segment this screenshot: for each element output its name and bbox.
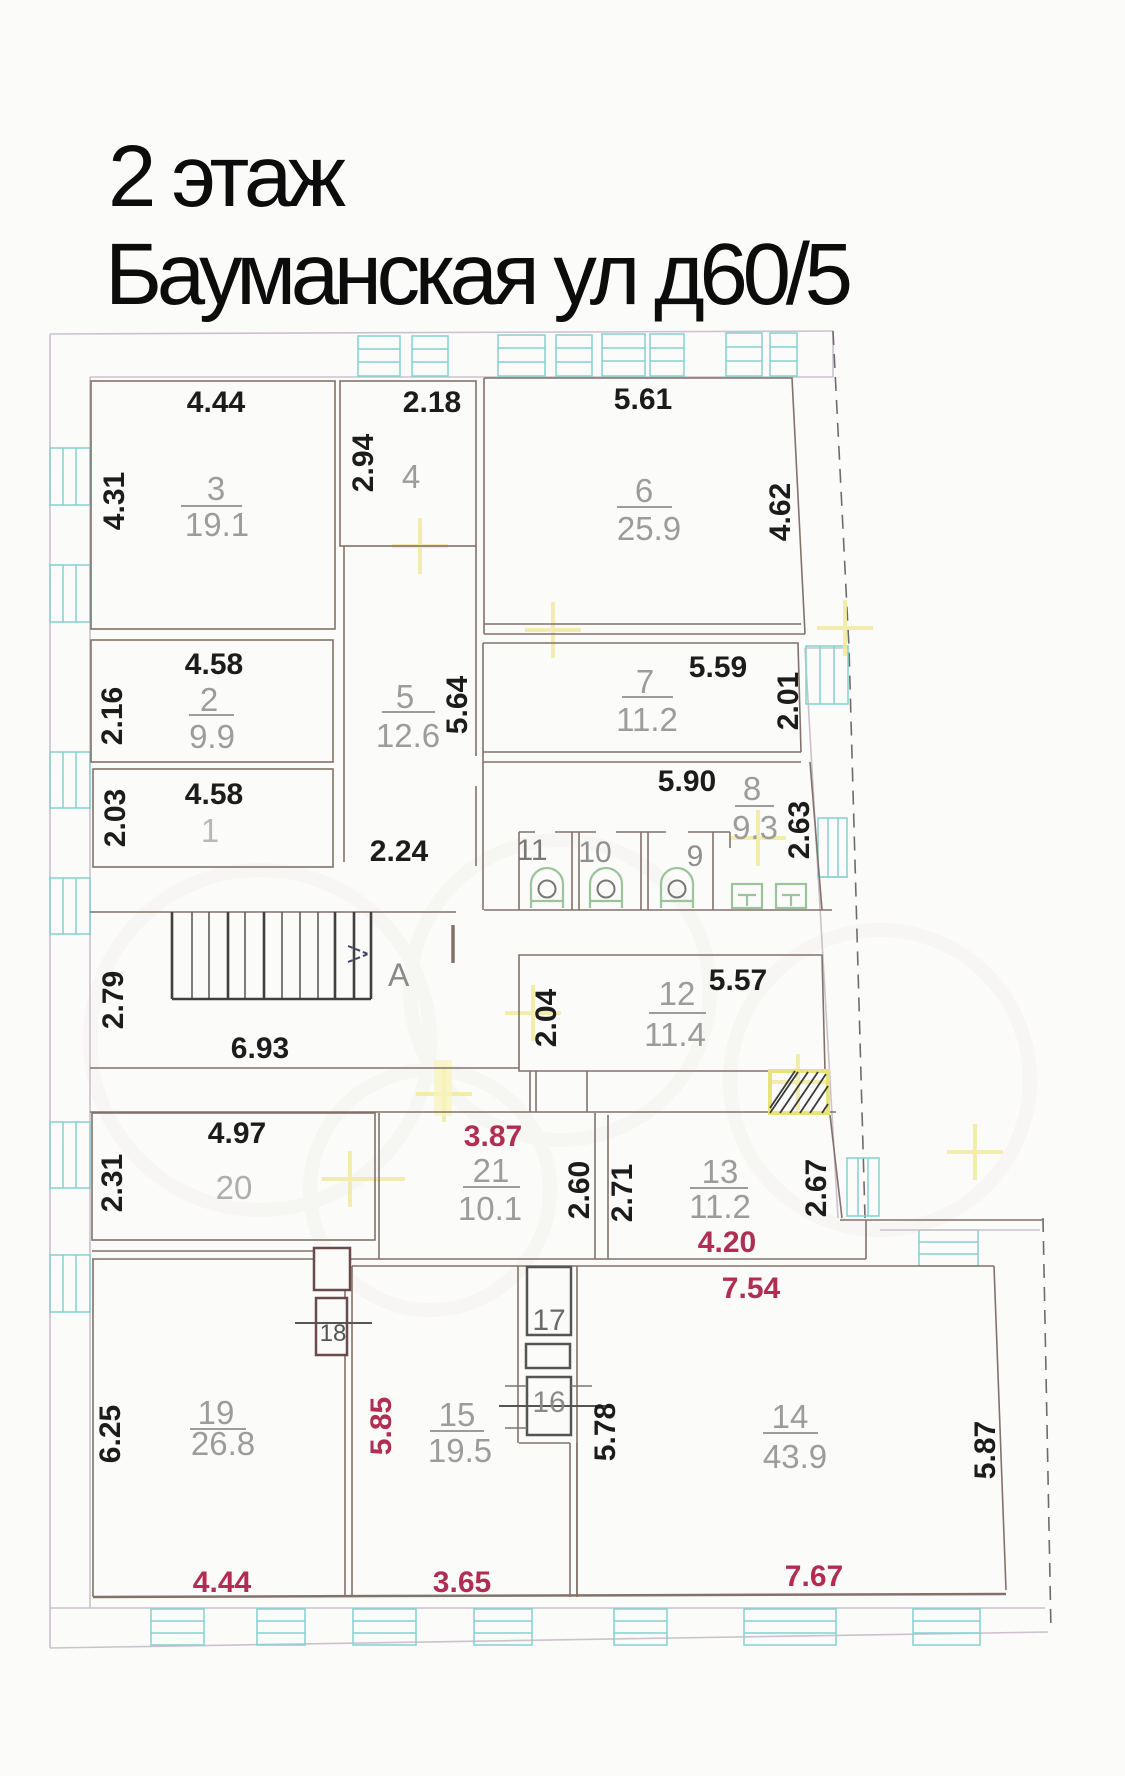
svg-text:2.18: 2.18 bbox=[403, 386, 461, 419]
svg-text:6.93: 6.93 bbox=[231, 1032, 289, 1065]
svg-text:2 этаж: 2 этаж bbox=[108, 128, 346, 225]
svg-text:2.94: 2.94 bbox=[347, 433, 380, 492]
svg-text:12.6: 12.6 bbox=[376, 717, 440, 754]
svg-text:4.20: 4.20 bbox=[698, 1226, 756, 1259]
svg-text:4.44: 4.44 bbox=[187, 386, 246, 419]
svg-text:5.85: 5.85 bbox=[365, 1397, 398, 1455]
svg-text:7.67: 7.67 bbox=[785, 1560, 843, 1593]
svg-text:2.79: 2.79 bbox=[97, 971, 130, 1029]
svg-text:2.31: 2.31 bbox=[96, 1154, 129, 1212]
svg-text:3.87: 3.87 bbox=[464, 1120, 522, 1153]
svg-text:7: 7 bbox=[636, 663, 654, 700]
svg-text:4.62: 4.62 bbox=[764, 483, 797, 541]
svg-text:5.90: 5.90 bbox=[658, 765, 716, 798]
svg-text:16: 16 bbox=[532, 1386, 565, 1419]
svg-text:6: 6 bbox=[635, 472, 653, 509]
svg-text:1: 1 bbox=[201, 812, 219, 849]
svg-text:7.54: 7.54 bbox=[722, 1272, 781, 1305]
svg-text:4.58: 4.58 bbox=[185, 778, 243, 811]
svg-text:5.64: 5.64 bbox=[441, 675, 474, 734]
svg-text:17: 17 bbox=[532, 1304, 565, 1337]
svg-text:6.25: 6.25 bbox=[94, 1405, 127, 1463]
svg-text:11.4: 11.4 bbox=[644, 1016, 706, 1053]
svg-text:2.24: 2.24 bbox=[370, 835, 429, 868]
svg-text:10: 10 bbox=[578, 836, 611, 869]
svg-text:10.1: 10.1 bbox=[458, 1190, 522, 1227]
svg-text:2.03: 2.03 bbox=[99, 789, 132, 847]
svg-text:19.1: 19.1 bbox=[185, 506, 249, 543]
svg-text:3: 3 bbox=[207, 470, 225, 507]
svg-text:2.67: 2.67 bbox=[800, 1159, 833, 1217]
svg-text:12: 12 bbox=[659, 975, 696, 1012]
svg-text:21: 21 bbox=[473, 1152, 510, 1189]
svg-text:14: 14 bbox=[772, 1398, 809, 1435]
svg-text:5.87: 5.87 bbox=[969, 1421, 1002, 1479]
svg-text:11: 11 bbox=[516, 834, 547, 867]
svg-text:4: 4 bbox=[402, 458, 420, 495]
svg-text:A: A bbox=[388, 957, 410, 993]
svg-text:2.71: 2.71 bbox=[606, 1164, 639, 1222]
svg-text:43.9: 43.9 bbox=[763, 1438, 827, 1475]
svg-text:8: 8 bbox=[743, 770, 761, 807]
svg-text:9.9: 9.9 bbox=[189, 718, 235, 755]
svg-text:2.01: 2.01 bbox=[772, 672, 805, 730]
svg-text:5.61: 5.61 bbox=[614, 383, 672, 416]
svg-text:2.16: 2.16 bbox=[96, 687, 129, 745]
svg-text:5.57: 5.57 bbox=[709, 964, 767, 997]
svg-text:5.78: 5.78 bbox=[589, 1403, 622, 1461]
svg-text:4.31: 4.31 bbox=[98, 472, 131, 530]
svg-text:26.8: 26.8 bbox=[191, 1425, 255, 1462]
svg-text:13: 13 bbox=[702, 1153, 739, 1190]
svg-text:4.58: 4.58 bbox=[185, 648, 243, 681]
svg-text:3.65: 3.65 bbox=[433, 1566, 491, 1599]
svg-text:9: 9 bbox=[687, 840, 704, 873]
svg-text:20: 20 bbox=[216, 1169, 253, 1206]
svg-text:9.3: 9.3 bbox=[732, 809, 778, 846]
svg-text:11.2: 11.2 bbox=[689, 1188, 751, 1225]
svg-text:11.2: 11.2 bbox=[616, 701, 678, 738]
svg-text:2.04: 2.04 bbox=[530, 988, 563, 1047]
svg-text:4.44: 4.44 bbox=[193, 1566, 252, 1599]
svg-text:2.63: 2.63 bbox=[783, 801, 816, 859]
svg-text:Бауманская ул д60/5: Бауманская ул д60/5 bbox=[105, 226, 853, 323]
svg-text:18: 18 bbox=[320, 1320, 347, 1347]
svg-text:4.97: 4.97 bbox=[208, 1117, 266, 1150]
svg-text:2.60: 2.60 bbox=[563, 1161, 596, 1219]
svg-text:19.5: 19.5 bbox=[428, 1432, 492, 1469]
svg-text:5: 5 bbox=[396, 678, 414, 715]
svg-text:25.9: 25.9 bbox=[617, 510, 681, 547]
svg-text:5.59: 5.59 bbox=[689, 651, 747, 684]
svg-text:2: 2 bbox=[200, 681, 218, 718]
svg-text:15: 15 bbox=[439, 1396, 476, 1433]
